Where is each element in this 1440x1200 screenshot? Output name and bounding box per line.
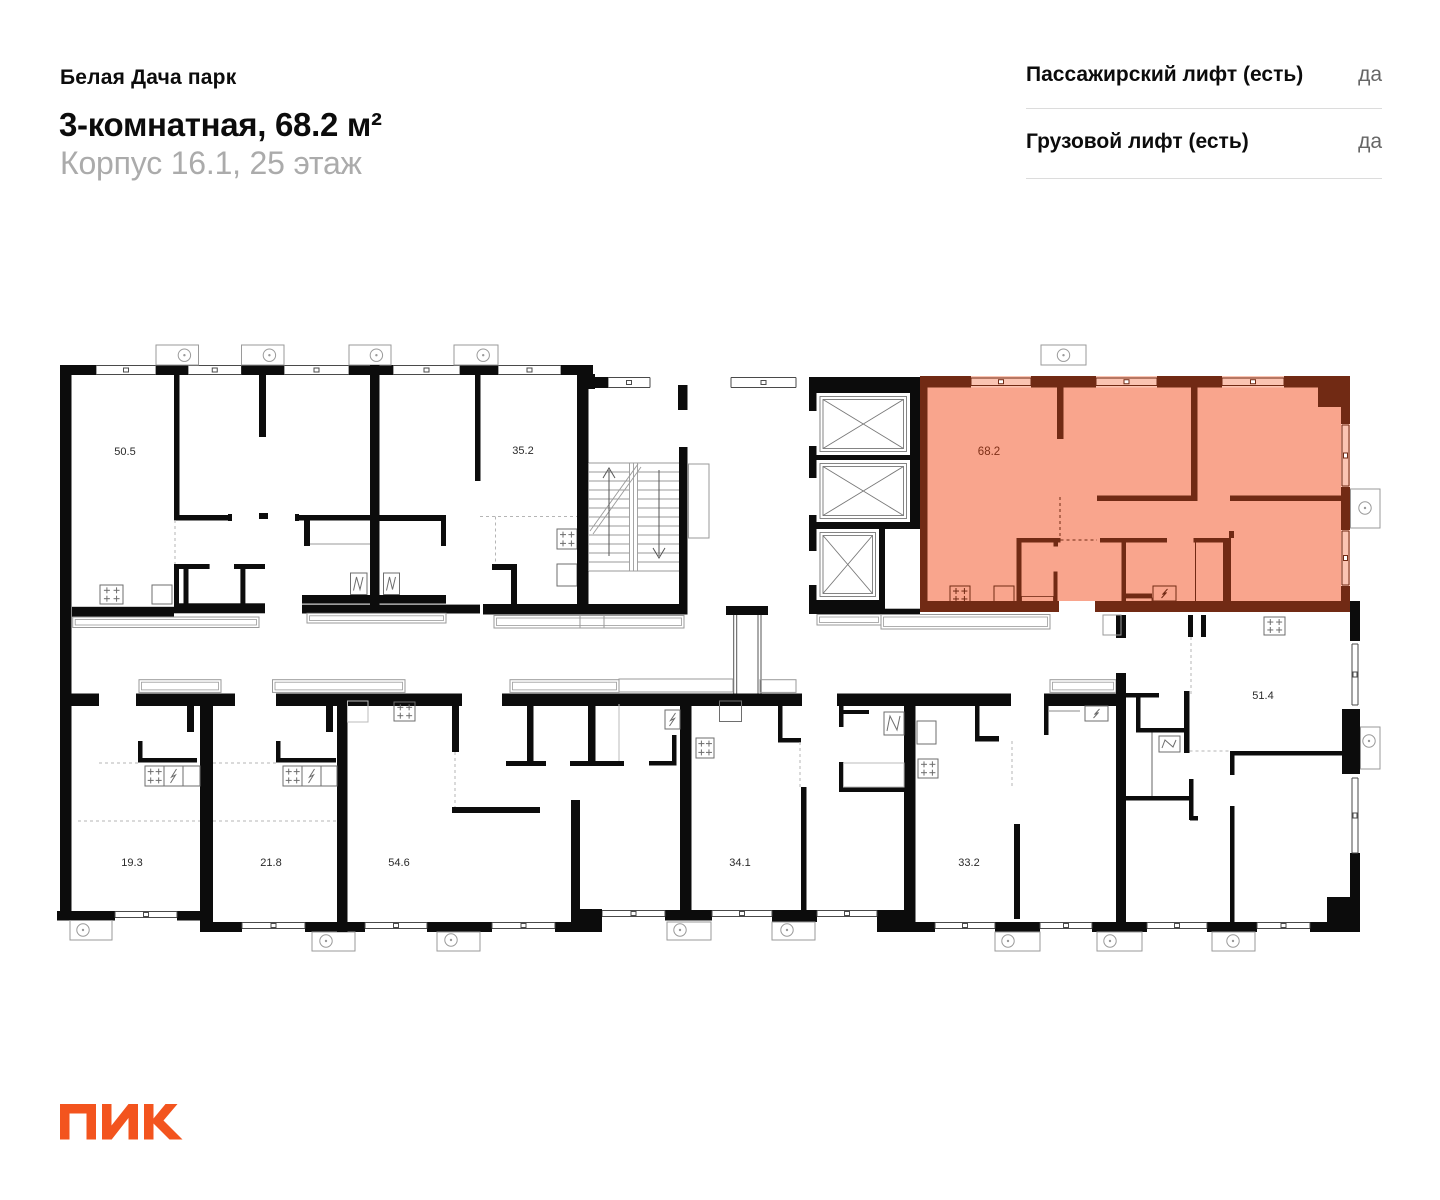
svg-text:34.1: 34.1 — [729, 857, 750, 869]
svg-text:51.4: 51.4 — [1252, 690, 1273, 702]
svg-text:50.5: 50.5 — [114, 446, 135, 458]
svg-text:33.2: 33.2 — [958, 857, 979, 869]
svg-text:21.8: 21.8 — [260, 857, 281, 869]
svg-text:68.2: 68.2 — [978, 446, 1000, 458]
svg-text:19.3: 19.3 — [121, 857, 142, 869]
svg-text:54.6: 54.6 — [388, 857, 409, 869]
svg-text:35.2: 35.2 — [512, 445, 533, 457]
